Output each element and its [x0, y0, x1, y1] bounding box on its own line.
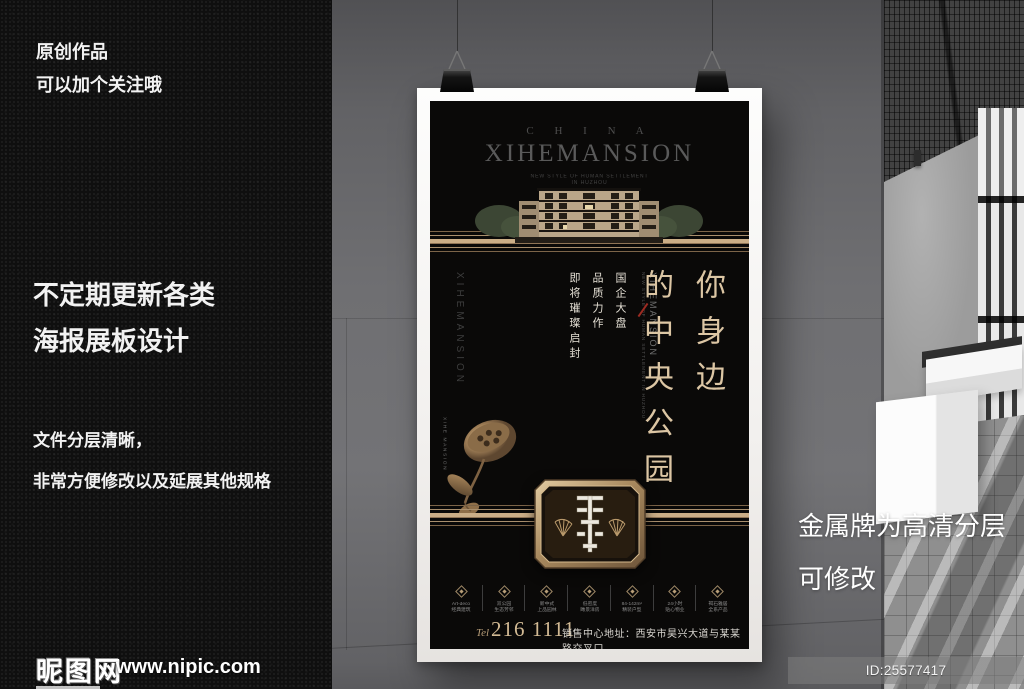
nipic-logo: 昵图网: [36, 650, 123, 689]
image-id-badge: ID:25577417 NO:20170911215906179031: [788, 657, 1024, 684]
feature-item: 84-142m²精装户型: [611, 585, 654, 616]
sales-address: 销售中心地址：西安市昊兴大道与某某路交叉口: [562, 625, 749, 649]
brand-tagline-line: NEW STYLE OF HUMAN SETTLEMENT: [454, 173, 725, 180]
note-line: 可修改: [798, 553, 1006, 606]
note-line: 可以加个关注哦: [36, 69, 162, 102]
nipic-url: www.nipic.com: [116, 656, 261, 679]
feature-caption: 24小时贴心物业: [665, 602, 684, 613]
slogan-columns: 国企大盘 品质力作 即将璀璨启封: [566, 272, 628, 362]
feature-caption: 褐石雅居全系产品: [708, 602, 727, 613]
brand-block: C H I N A XIHEMANSION NEW STYLE OF HUMAN…: [430, 125, 749, 188]
note-line: 金属牌为高清分层: [798, 500, 1006, 553]
feature-diamond-icon: [669, 585, 682, 598]
feature-row: Art-deco经典建筑 双公园生态芳邻 新中式上品园林 低密度瞰景洋房 84-…: [440, 585, 739, 616]
feature-item: Art-deco经典建筑: [440, 585, 483, 616]
headline-column: 的中央公园: [633, 269, 677, 499]
feature-caption: 双公园生态芳邻: [494, 602, 513, 613]
feature-caption: 新中式上品园林: [537, 602, 556, 613]
binder-clip-icon: [438, 48, 476, 94]
brand-country: C H I N A: [430, 125, 749, 137]
hanging-string-right: [712, 0, 713, 52]
building-render-image: [473, 181, 705, 243]
metal-plaque-emblem: [533, 478, 647, 570]
scene: 原创作品 可以加个关注哦 不定期更新各类 海报展板设计 文件分层清晰， 非常方便…: [0, 0, 1024, 689]
note-line: 不定期更新各类: [33, 272, 215, 318]
slogan-column: 国企大盘: [612, 272, 628, 362]
feature-diamond-icon: [583, 585, 596, 598]
side-vertical-brand: XIHEMANSION: [454, 272, 465, 392]
note-line: 非常方便修改以及延展其他规格: [33, 461, 271, 502]
note-line: 海报展板设计: [33, 318, 215, 364]
brand-name: XIHEMANSION: [430, 140, 749, 168]
binder-clip-icon: [693, 48, 731, 94]
poster-white-frame: C H I N A XIHEMANSION NEW STYLE OF HUMAN…: [417, 88, 762, 662]
note-original-work: 原创作品 可以加个关注哦: [36, 36, 162, 102]
feature-item: 24小时贴心物业: [654, 585, 697, 616]
wall-seam-vertical: [346, 318, 347, 650]
note-update-info: 不定期更新各类 海报展板设计: [33, 272, 215, 364]
note-line: 文件分层清晰，: [33, 420, 271, 461]
feature-diamond-icon: [540, 585, 553, 598]
tel-label: Tel: [476, 627, 489, 639]
track-spotlight: [914, 150, 921, 166]
feature-caption: 低密度瞰景洋房: [580, 602, 599, 613]
feature-diamond-icon: [711, 585, 724, 598]
feature-diamond-icon: [498, 585, 511, 598]
feature-diamond-icon: [455, 585, 468, 598]
feature-diamond-icon: [626, 585, 639, 598]
note-file-layers: 文件分层清晰， 非常方便修改以及延展其他规格: [33, 420, 271, 502]
feature-item: 低密度瞰景洋房: [568, 585, 611, 616]
hanging-string-left: [457, 0, 458, 52]
headline-vertical: 你身边 的中央公园: [633, 269, 729, 499]
slogan-column: 品质力作: [589, 272, 605, 362]
feature-item: 新中式上品园林: [525, 585, 568, 616]
poster-artwork: C H I N A XIHEMANSION NEW STYLE OF HUMAN…: [430, 101, 749, 649]
feature-caption: 84-142m²精装户型: [622, 602, 643, 613]
black-textured-wall: 原创作品 可以加个关注哦 不定期更新各类 海报展板设计 文件分层清晰， 非常方便…: [0, 0, 332, 689]
note-metal-plate-layer: 金属牌为高清分层 可修改: [798, 500, 1006, 606]
phone-number: Tel216 1111: [476, 617, 575, 642]
feature-item: 褐石雅居全系产品: [696, 585, 739, 616]
feature-caption: Art-deco经典建筑: [452, 602, 471, 613]
feature-item: 双公园生态芳邻: [483, 585, 526, 616]
slogan-column: 即将璀璨启封: [566, 272, 582, 362]
note-line: 原创作品: [36, 36, 162, 69]
headline-column: 你身边: [685, 269, 729, 499]
